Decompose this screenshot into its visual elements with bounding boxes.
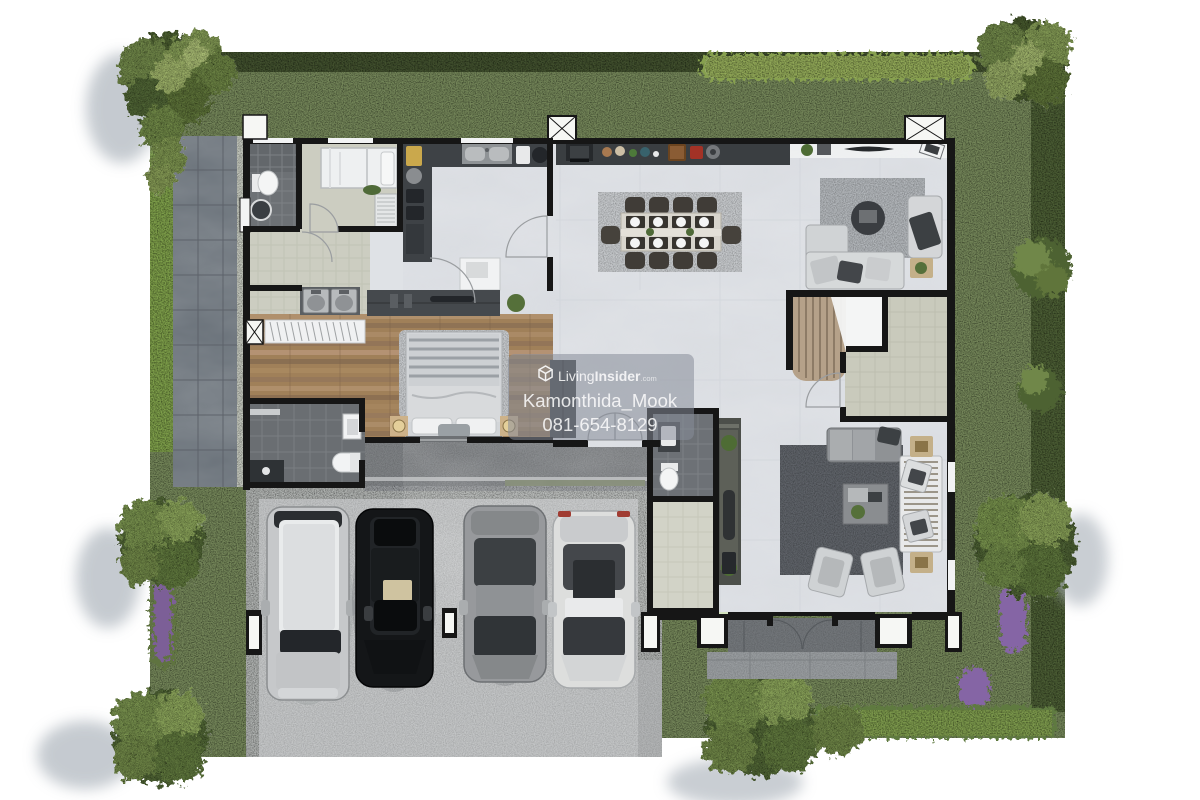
svg-text:081-654-8129: 081-654-8129: [542, 414, 657, 435]
svg-text:Kamonthida_Mook: Kamonthida_Mook: [523, 390, 678, 412]
